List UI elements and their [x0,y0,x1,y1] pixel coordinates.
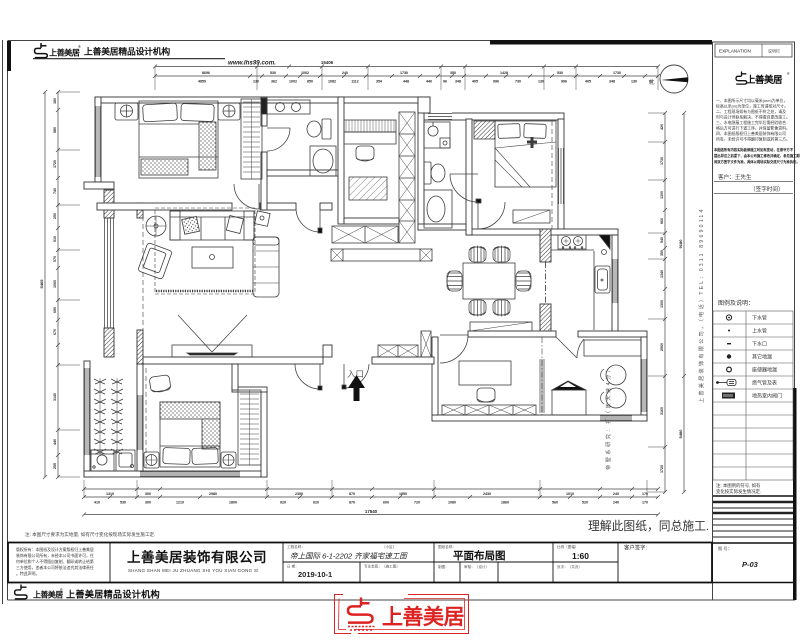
svg-text:上善美居: 上善美居 [382,605,464,629]
svg-text:www.lhs99.com.: www.lhs99.com. [228,60,276,67]
svg-text:审核：（设计）: 审核：（设计） [464,564,489,569]
svg-text:1730: 1730 [660,157,664,165]
svg-text:2560: 2560 [660,343,664,351]
svg-text:15406: 15406 [321,60,334,65]
svg-text:530: 530 [557,71,563,75]
svg-text:2430: 2430 [483,492,491,496]
svg-text:三、水电隐蔽工程施工完毕后需经验收合: 三、水电隐蔽工程施工完毕后需经验收合 [716,120,786,125]
svg-text:SHANG SHAN MEI JU ZHUANG SHI Y: SHANG SHAN MEI JU ZHUANG SHI YOU XIAN GO… [128,568,259,573]
svg-text:（小区）: （小区） [382,544,396,549]
svg-text:510: 510 [53,236,57,242]
svg-text:工程名称：: 工程名称： [287,544,305,549]
svg-text:130: 130 [631,80,637,84]
svg-text:348: 348 [455,80,461,84]
svg-text:EXPLANATION: EXPLANATION [719,49,751,54]
svg-text:730: 730 [515,80,521,84]
svg-text:1002: 1002 [289,80,297,84]
svg-text:上善美居精品设计机构: 上善美居精品设计机构 [66,589,160,600]
svg-text:448: 448 [403,80,409,84]
svg-text:580: 580 [53,127,57,133]
svg-text:1310: 1310 [106,492,114,496]
svg-text:1850: 1850 [399,492,407,496]
svg-text:96: 96 [443,80,447,84]
svg-text:530: 530 [270,71,276,75]
svg-text:间双方签字文件为准，具体以现场实际交底尺寸为准执行。: 间双方签字文件为准，具体以现场实际交底尺寸为准执行。 [714,159,800,164]
svg-text:560: 560 [552,501,558,505]
svg-text:440: 440 [426,80,432,84]
svg-text:页次：（共页）: 页次：（共页） [557,564,582,569]
svg-text:354: 354 [376,80,382,84]
svg-text:本图纸所有内容实际装修施工时如有变动，在原甲方不: 本图纸所有内容实际装修施工时如有变动，在原甲方不 [713,147,794,152]
svg-text:996: 996 [493,80,499,84]
svg-text:420: 420 [660,124,664,130]
svg-text:170: 170 [642,492,648,496]
svg-text:1082: 1082 [328,80,336,84]
svg-text:540: 540 [660,237,664,243]
svg-text:1800: 1800 [229,501,237,505]
svg-text:1300: 1300 [660,300,664,308]
svg-text:2350: 2350 [295,492,303,496]
svg-text:255: 255 [53,463,57,469]
svg-text:1210: 1210 [176,501,184,505]
svg-text:图例及说明：: 图例及说明： [718,299,754,307]
svg-text:P-03: P-03 [742,560,759,569]
svg-text:装饰有限公司所有，未经本公司书面许可，任: 装饰有限公司所有，未经本公司书面许可，任 [16,553,94,558]
svg-text:5480: 5480 [678,429,683,439]
svg-text:时与设计师联系解决，不得擅自更改施工。: 时与设计师联系解决，不得擅自更改施工。 [716,115,790,120]
svg-text:（签字时间）: （签字时间） [750,185,784,193]
svg-text:上善美居精品设计机构: 上善美居精品设计机构 [84,46,170,57]
svg-text:440: 440 [53,439,57,445]
svg-text:250: 250 [53,213,57,219]
svg-text:5465: 5465 [39,279,44,289]
svg-text:180: 180 [53,98,57,104]
svg-text:下水口: 下水口 [752,341,767,348]
svg-text:410: 410 [94,501,100,505]
svg-text:620: 620 [313,501,319,505]
svg-text:1002: 1002 [301,71,309,75]
svg-text:1080: 1080 [448,501,456,505]
svg-text:®: ® [787,72,790,76]
svg-text:690: 690 [53,307,57,313]
svg-text:920: 920 [280,501,286,505]
svg-text:上善美居装饰有限公司: 上善美居装饰有限公司 [127,549,267,565]
svg-text:图纸名称：: 图纸名称： [438,544,456,549]
svg-text:870: 870 [349,492,355,496]
svg-text:570: 570 [53,256,57,262]
svg-text:专业会签：（施工图）: 专业会签：（施工图） [364,564,400,569]
svg-text:300: 300 [145,492,151,496]
svg-text:三方使用，违者本公司将依法追究其法律责任: 三方使用，违者本公司将依法追究其法律责任 [16,565,94,570]
svg-text:1010: 1010 [566,492,574,496]
svg-text:注: 本图尺寸要求为实地量, 如有尺寸变化按现场实际发生施工: 注: 本图尺寸要求为实地量, 如有尺寸变化按现场实际发生施工定. [25,531,155,538]
svg-text:日 期：: 日 期： [287,564,299,569]
svg-text:地热室内阀门: 地热室内阀门 [752,393,782,400]
svg-text:130: 130 [538,80,544,84]
svg-text:上水管: 上水管 [752,328,767,335]
svg-text:130: 130 [253,80,259,84]
svg-text:1428: 1428 [500,71,508,75]
svg-text:362: 362 [271,80,277,84]
svg-text:17540: 17540 [365,509,378,514]
svg-text:1300: 1300 [660,191,664,199]
svg-text:理解此图纸，同总施工.: 理解此图纸，同总施工. [588,519,709,533]
svg-text:北: 北 [649,78,655,86]
svg-text:下水管: 下水管 [752,315,767,322]
svg-text:405: 405 [472,80,478,84]
svg-text:1112: 1112 [351,80,359,84]
svg-text:240: 240 [613,501,619,505]
svg-text:版权所有：本图纸及设计方案版权归上善美居: 版权所有：本图纸及设计方案版权归上善美居 [16,547,94,552]
svg-text:1730: 1730 [400,71,408,75]
svg-text:标高以米(m)为单位，施工时请核对尺寸。: 标高以米(m)为单位，施工时请核对尺寸。 [716,104,788,109]
svg-text:960: 960 [660,218,664,224]
svg-text:客户签字:: 客户签字: [624,544,647,552]
svg-text:何单位和个人不得擅自复制、翻印或转让给第: 何单位和个人不得擅自复制、翻印或转让给第 [16,559,94,564]
svg-text:520: 520 [582,501,588,505]
svg-text:350: 350 [660,250,664,256]
svg-text:4850: 4850 [198,80,206,84]
svg-text:170: 170 [642,501,648,505]
svg-text:996: 996 [561,80,567,84]
svg-text:530: 530 [120,501,126,505]
svg-text:670: 670 [53,329,57,335]
svg-text:850: 850 [307,80,313,84]
svg-text:所有，未经许可不得翻印复制或转第三方。: 所有，未经许可不得翻印复制或转第三方。 [716,137,790,142]
svg-text:8696: 8696 [202,71,210,75]
svg-text:变化按实际发生情况定.: 变化按实际发生情况定. [716,488,761,495]
svg-text:1060: 1060 [53,280,57,288]
svg-text:帝上国际 6-1-2202 齐家福宅速工图: 帝上国际 6-1-2202 齐家福宅速工图 [290,552,408,561]
svg-text:1860: 1860 [501,501,509,505]
svg-text:比例（图幅）: 比例（图幅） [557,544,579,549]
svg-text:制图：: 制图： [438,564,449,569]
svg-text:240: 240 [613,492,619,496]
svg-text:帝墅系研究：打（放大速4分）: 帝墅系研究：打（放大速4分） [604,365,612,470]
svg-text:上善美居: 上善美居 [746,74,783,86]
svg-text:其它地漏: 其它地漏 [752,354,772,361]
svg-text:客户：王先生: 客户：王先生 [718,173,752,181]
svg-text:300: 300 [145,501,151,505]
svg-text:405: 405 [585,80,591,84]
svg-text:®: ® [60,588,63,592]
svg-text:说明栏: 说明栏 [768,48,780,54]
svg-text:注: 本图例的符号, 如有: 注: 本图例的符号, 如有 [716,482,761,489]
svg-text:格后方可进行下道工序，并保留影像资料。: 格后方可进行下道工序，并保留影像资料。 [716,126,790,131]
svg-text:。特此声明。: 。特此声明。 [16,571,39,576]
svg-text:上善美居: 上善美居 [49,48,80,58]
svg-text:3160: 3160 [660,407,664,415]
svg-text:720: 720 [414,501,420,505]
svg-text:®: ® [78,44,81,49]
svg-text:2019-10-1: 2019-10-1 [298,570,332,579]
svg-text:上善美居: 上善美居 [33,590,63,600]
svg-text:2980: 2980 [209,492,217,496]
svg-text:1720: 1720 [660,465,664,473]
svg-text:870: 870 [349,501,355,505]
svg-text:1720: 1720 [53,160,57,168]
svg-text:348: 348 [609,80,615,84]
svg-text:一、本图所示尺寸均以毫米(mm)为单位，: 一、本图所示尺寸均以毫米(mm)为单位， [716,98,787,103]
svg-text:600: 600 [383,501,389,505]
svg-text:1340: 1340 [660,270,664,278]
svg-text:二、工程现场如有与图纸不符之处，请及: 二、工程现场如有与图纸不符之处，请及 [716,109,786,114]
svg-text:平面布局图: 平面布局图 [453,549,506,562]
svg-text:燃气管及表: 燃气管及表 [752,380,777,387]
svg-text:1:60: 1:60 [572,551,589,561]
svg-text:240: 240 [342,71,348,75]
svg-text:提出异议之前提下，由本公司施工修改并确定，参见施工期: 提出异议之前提下，由本公司施工修改并确定，参见施工期 [714,153,800,158]
svg-text:四、本图纸版权归上善美居装饰有限公司: 四、本图纸版权归上善美居装饰有限公司 [716,131,786,136]
svg-text:740: 740 [53,188,57,194]
svg-text:350: 350 [450,71,456,75]
svg-text:3140: 3140 [53,393,57,401]
svg-text:9180: 9180 [678,239,683,249]
svg-text:上善美居装饰有限公司，（电话）TEL：0311 896901: 上善美居装饰有限公司，（电话）TEL：0311 89690114 [697,207,705,403]
svg-text:1730: 1730 [613,71,621,75]
svg-text:座便器地漏: 座便器地漏 [752,367,777,374]
